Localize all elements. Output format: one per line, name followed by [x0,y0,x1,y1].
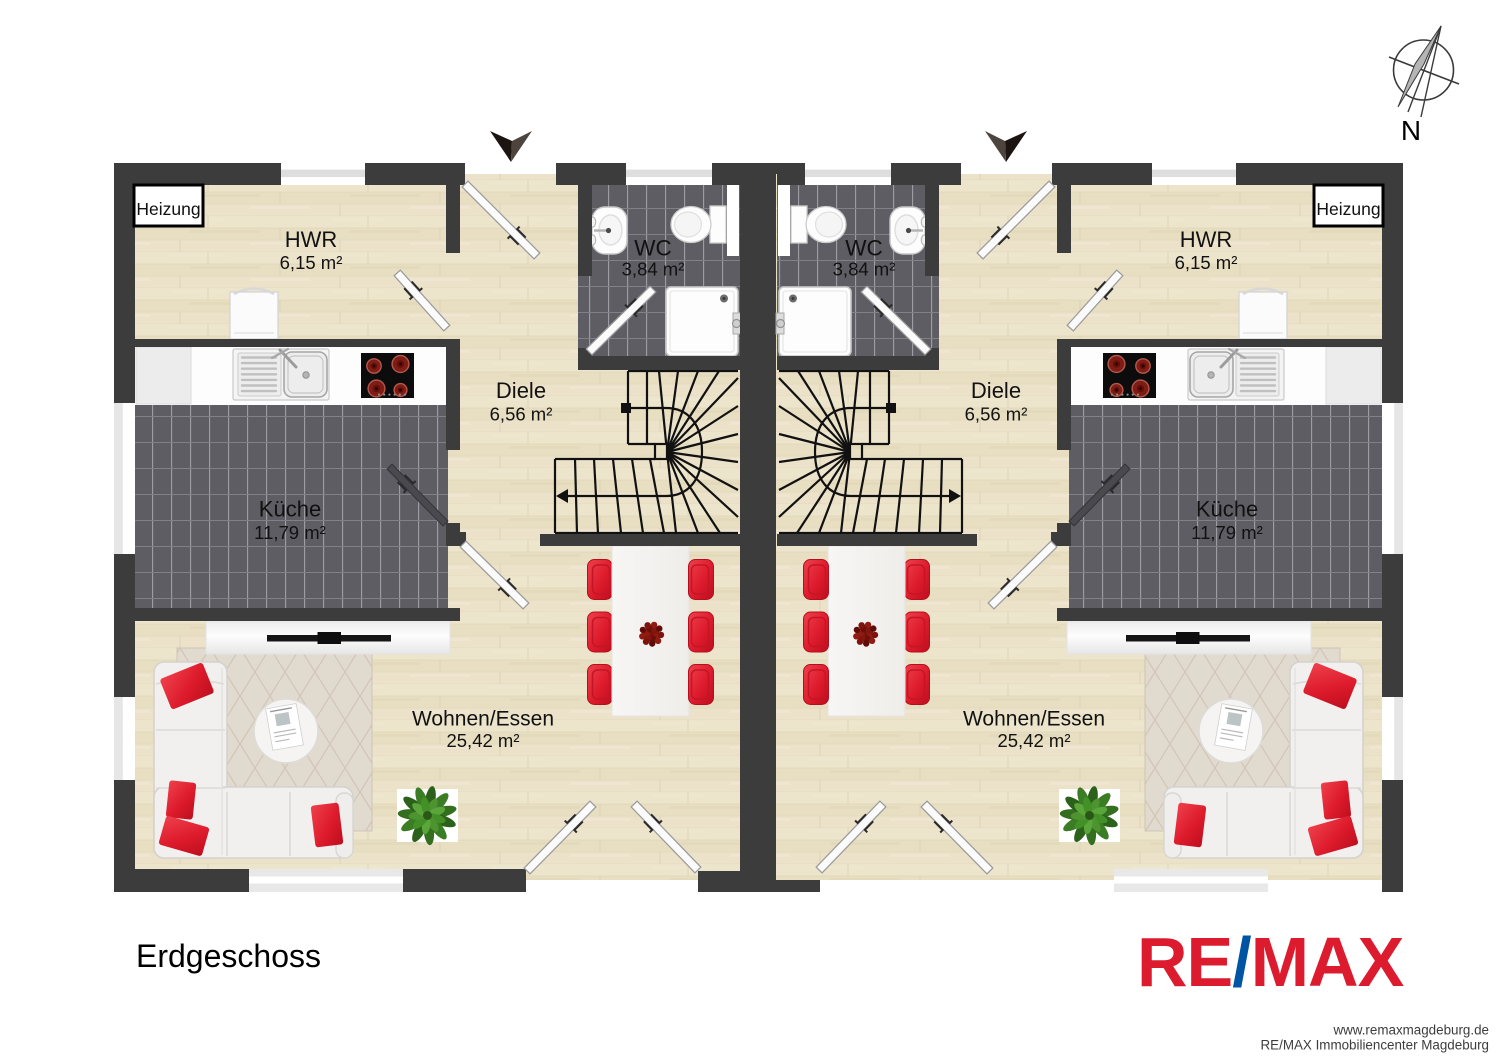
svg-text:HWR: HWR [285,227,338,252]
svg-text:25,42 m²: 25,42 m² [997,730,1070,751]
svg-text:Wohnen/Essen: Wohnen/Essen [963,708,1105,731]
svg-text:N: N [1401,115,1421,146]
svg-text:6,15 m²: 6,15 m² [1175,252,1238,273]
svg-text:Heizung: Heizung [1316,199,1380,219]
svg-text:Küche: Küche [1196,497,1258,522]
svg-text:6,56 m²: 6,56 m² [965,404,1028,425]
svg-text:25,42 m²: 25,42 m² [446,730,519,751]
svg-text:Erdgeschoss: Erdgeschoss [136,938,321,974]
svg-text:3,84 m²: 3,84 m² [622,259,685,280]
svg-text:6,15 m²: 6,15 m² [280,252,343,273]
svg-text:11,79 m²: 11,79 m² [1191,522,1263,543]
svg-text:6,56 m²: 6,56 m² [490,404,553,425]
svg-text:www.remaxmagdeburg.de: www.remaxmagdeburg.de [1332,1023,1489,1038]
svg-text:3,84 m²: 3,84 m² [833,259,896,280]
svg-text:WC: WC [845,236,883,261]
svg-text:RE/MAX: RE/MAX [1137,923,1405,1001]
svg-text:WC: WC [634,236,672,261]
svg-text:Diele: Diele [971,378,1021,403]
svg-text:Wohnen/Essen: Wohnen/Essen [412,708,554,731]
svg-text:HWR: HWR [1180,227,1233,252]
svg-text:Heizung: Heizung [136,199,200,219]
svg-text:Küche: Küche [259,497,321,522]
svg-text:RE/MAX Immobiliencenter Magdeb: RE/MAX Immobiliencenter Magdeburg [1261,1038,1489,1053]
svg-text:Diele: Diele [496,378,546,403]
svg-text:11,79 m²: 11,79 m² [254,522,326,543]
